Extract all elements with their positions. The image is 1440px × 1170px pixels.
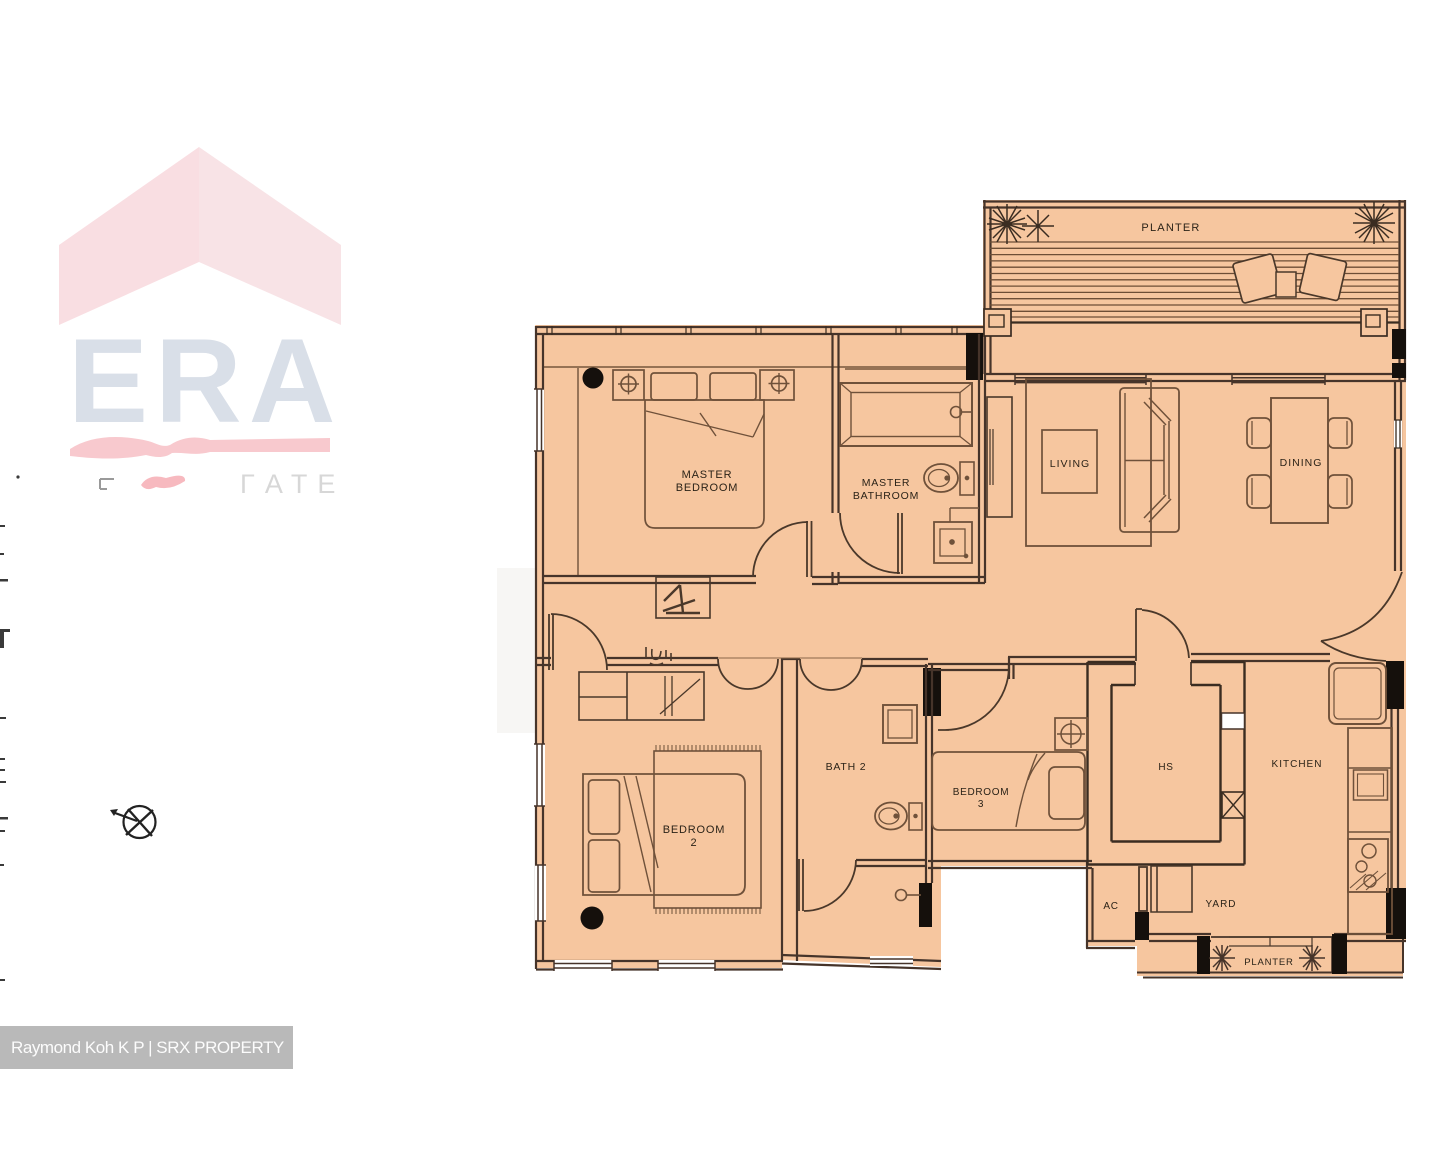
svg-text:AC: AC [1103,901,1118,912]
svg-text:BEDROOM: BEDROOM [953,787,1010,798]
svg-text:LIVING: LIVING [1050,458,1090,470]
svg-text:PLANTER: PLANTER [1141,222,1200,234]
svg-text:ΓATE: ΓATE [240,469,345,499]
svg-text:BATHROOM: BATHROOM [853,490,919,502]
svg-text:BEDROOM: BEDROOM [676,482,738,494]
svg-text:MASTER: MASTER [862,477,911,489]
svg-text:Raymond Koh K P | SRX PROPERTY: Raymond Koh K P | SRX PROPERTY [11,1038,284,1057]
svg-text:YARD: YARD [1205,899,1236,910]
svg-text:BATH 2: BATH 2 [826,761,867,773]
svg-text:DINING: DINING [1280,457,1323,469]
svg-text:MASTER: MASTER [682,469,733,481]
svg-text:PLANTER: PLANTER [1244,957,1293,968]
svg-text:2: 2 [691,837,698,849]
svg-text:HS: HS [1158,762,1173,773]
svg-text:BEDROOM: BEDROOM [663,824,725,836]
svg-text:KITCHEN: KITCHEN [1272,759,1323,770]
svg-text:ERA: ERA [68,314,342,448]
svg-text:3: 3 [978,799,984,810]
